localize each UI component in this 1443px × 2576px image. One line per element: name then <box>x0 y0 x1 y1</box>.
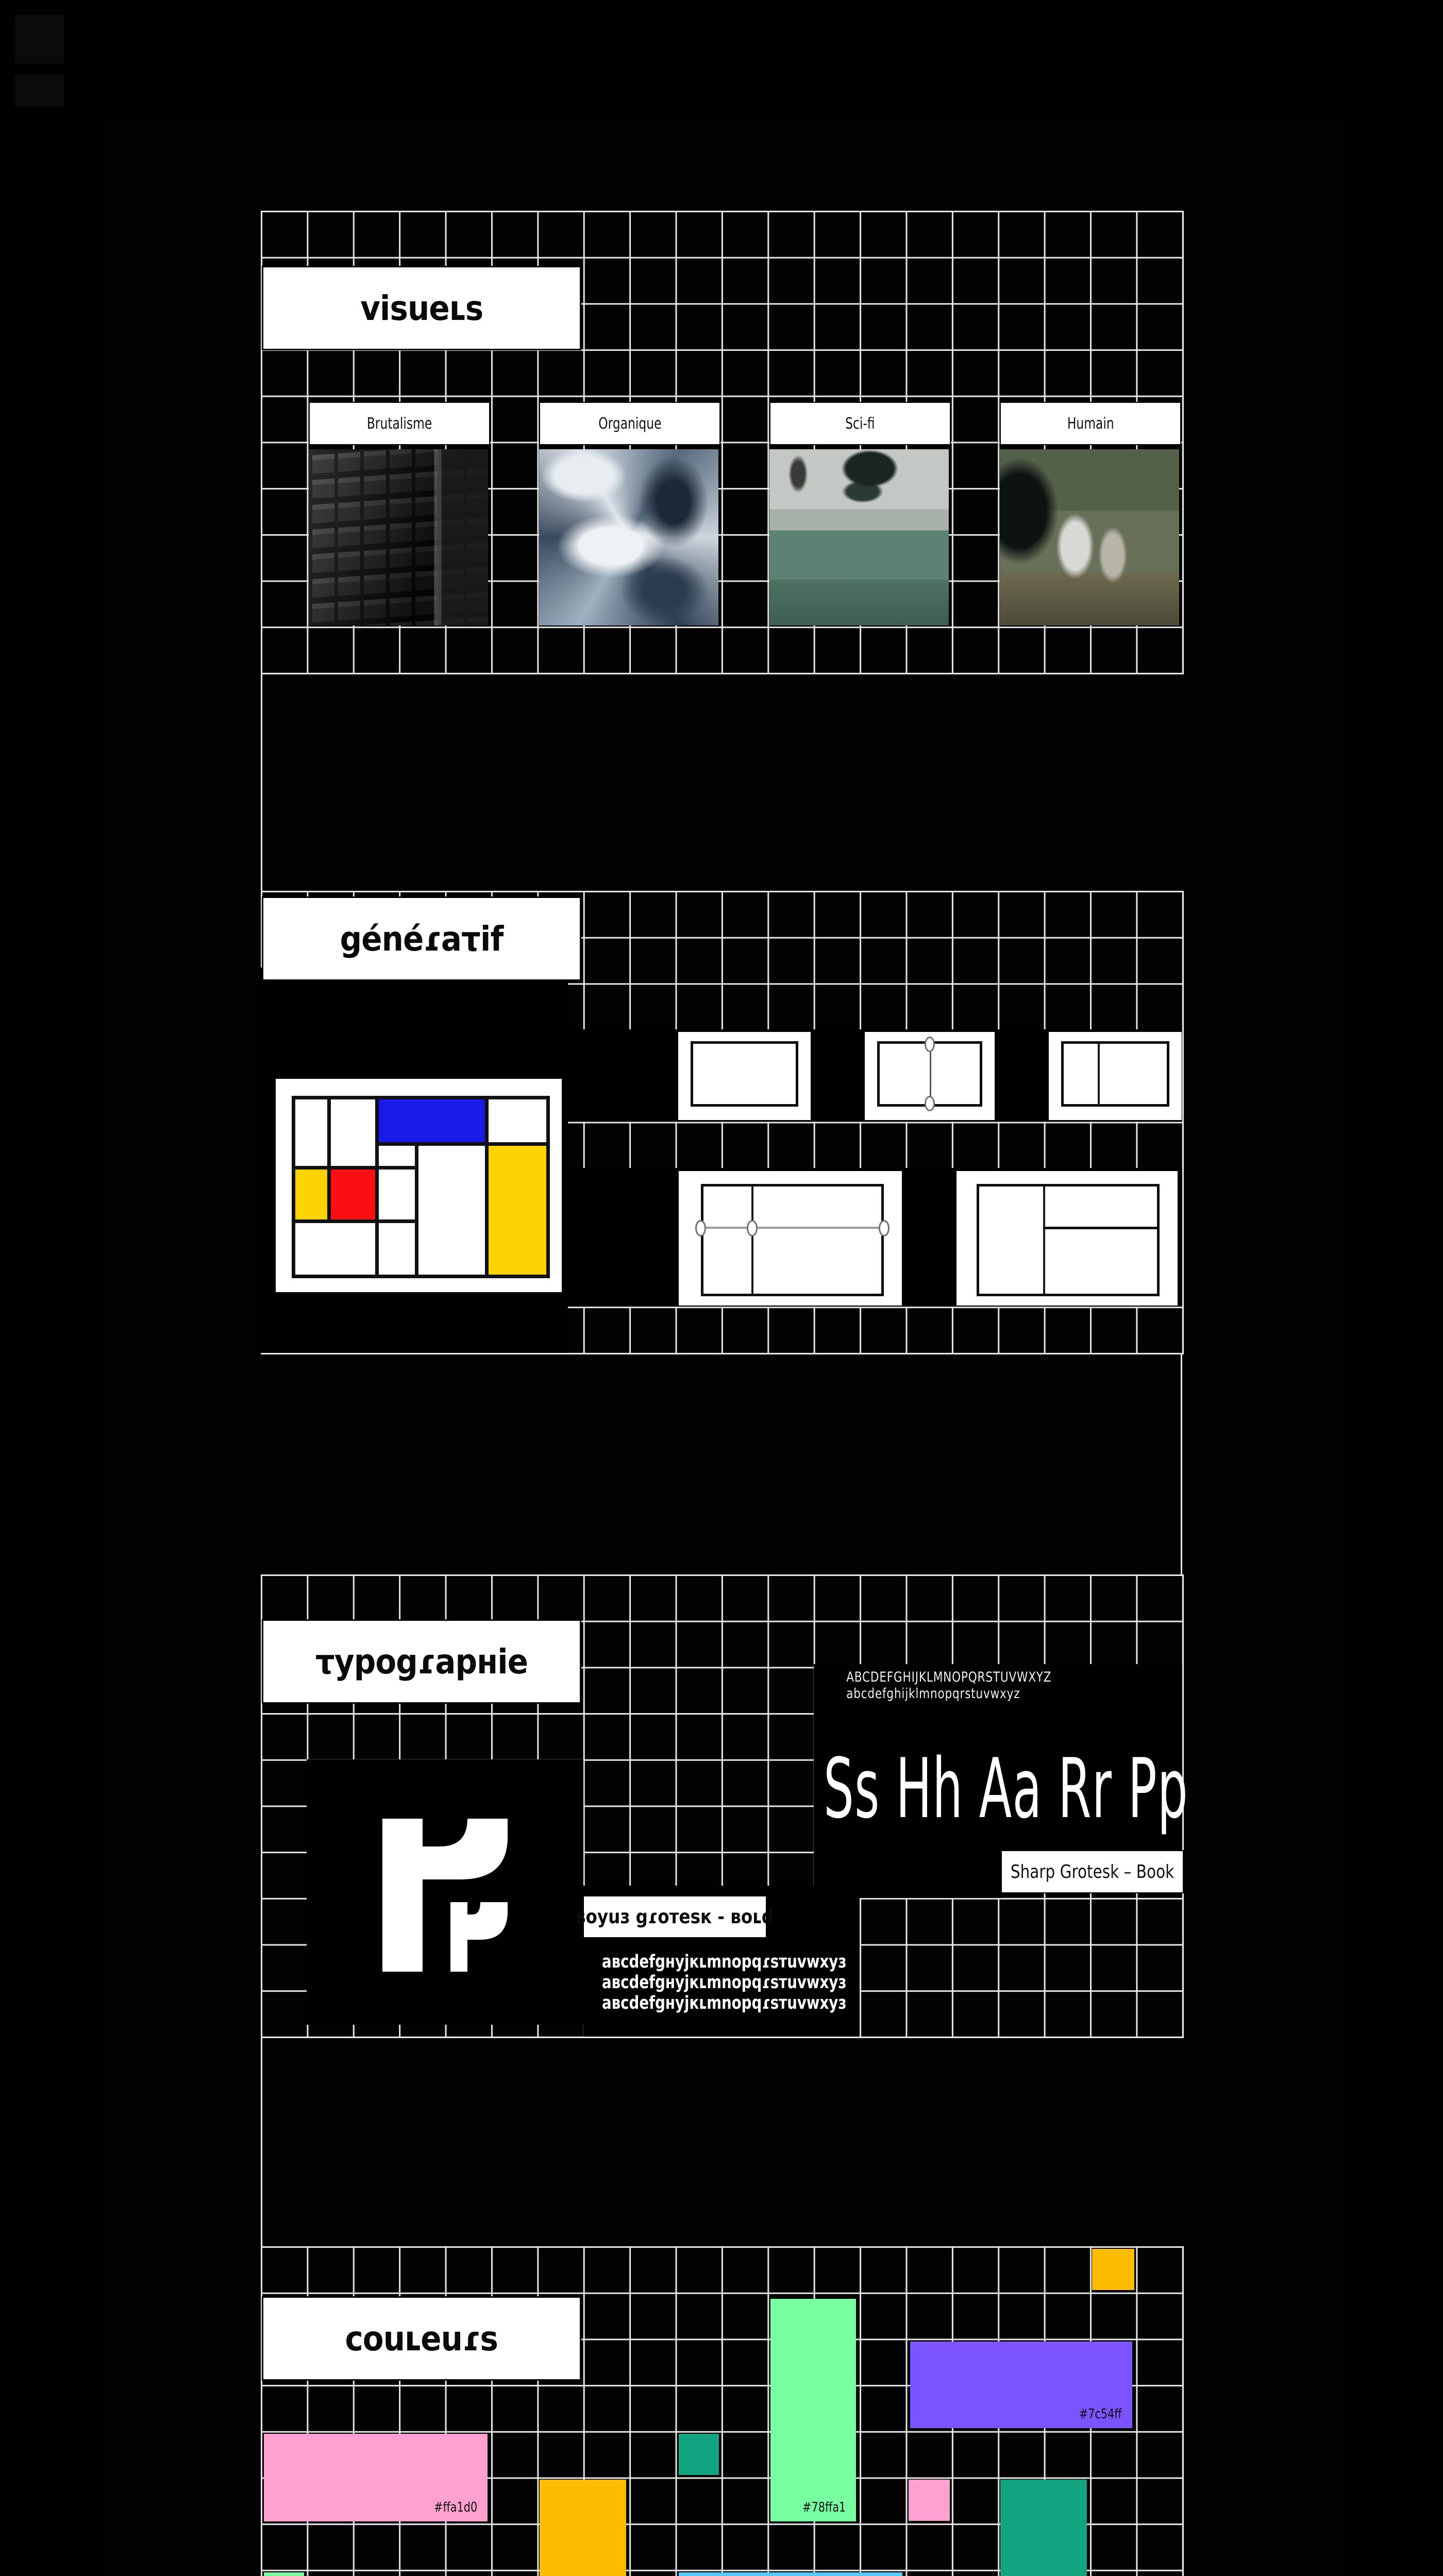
measure-line <box>698 1227 886 1229</box>
path-handle-icon <box>747 1220 758 1236</box>
swatch-mint-small <box>264 2572 304 2576</box>
wireframe-rectangle <box>1061 1041 1169 1107</box>
swatch-pink-small <box>909 2480 950 2521</box>
couleurs-title: couʟeuɾs <box>345 2319 498 2359</box>
typographie-title-box: τypogɾapнie <box>262 1619 581 1704</box>
soyuz-grotesk-label: soyuз gɾoтesк - вoʟd <box>576 1906 774 1928</box>
visuels-title-box: visueʟs <box>262 266 581 350</box>
wireframe-card-split-handles <box>865 1032 995 1120</box>
mondrian-blue-block <box>375 1096 485 1146</box>
brutalisme-image <box>309 449 488 625</box>
swatch-teal-small <box>679 2434 719 2475</box>
visuels-title: visueʟs <box>360 289 483 328</box>
mondrian-card <box>276 1079 562 1292</box>
category-label-humain: Humain <box>1000 402 1181 445</box>
category-label-scifi: Sci-fi <box>769 402 951 445</box>
swatch-teal-tall: #12a481 <box>1000 2480 1087 2576</box>
wireframe-rectangle <box>691 1041 798 1107</box>
swatch-orange-tall: #febc00 <box>540 2480 626 2576</box>
wireframe-rectangle <box>701 1184 884 1296</box>
soyuz-grotesk-label-box: soyuз gɾoтesк - вoʟd <box>584 1896 766 1937</box>
moodboard-canvas: visueʟs Brutalisme Organique Sci-fi Huma… <box>0 0 1443 2576</box>
swatch-hex-label: #7c54ff <box>1079 2406 1122 2422</box>
swatch-hex-label: #78ffa1 <box>802 2500 846 2515</box>
generatif-title-box: généɾaτif <box>262 896 581 981</box>
uppercase-alphabet: ABCDEFGHIJKLMNOPQRSTUVWXYZ <box>846 1669 977 1686</box>
corner-chip <box>15 75 64 107</box>
mondrian-composition <box>292 1096 550 1278</box>
wireframe-card-layout <box>957 1171 1178 1306</box>
alphabet-specimen: ABCDEFGHIJKLMNOPQRSTUVWXYZ abcdefghijklm… <box>846 1669 977 1702</box>
humain-image <box>1000 449 1179 625</box>
lowercase-alphabet: abcdefghijklmnopqrstuvwxyz <box>846 1686 977 1702</box>
mondrian-red-block <box>327 1166 379 1223</box>
wireframe-rectangle <box>877 1041 982 1107</box>
section-connector-line <box>261 673 262 891</box>
mondrian-yellow-block <box>292 1166 331 1223</box>
wireframe-rectangle <box>977 1184 1160 1296</box>
mondrian-yellow-tall-block <box>485 1142 550 1278</box>
soyuz-glyph-logo <box>307 1759 583 2025</box>
wireframe-card-frame <box>678 1032 811 1120</box>
organique-image <box>539 449 718 625</box>
sharp-grotesk-label-box: Sharp Grotesk – Book <box>1001 1850 1184 1893</box>
couleurs-title-box: couʟeuɾs <box>262 2296 581 2381</box>
section-connector-line <box>1181 1353 1182 1574</box>
swatch-purple-wide: #7c54ff <box>910 2342 1132 2428</box>
swatch-mint-tall: #78ffa1 <box>770 2299 856 2521</box>
swatch-pink-large: #ffa1d0 <box>264 2434 488 2521</box>
letter-pairs-specimen: Ss Hh Aa Rr Pp <box>824 1740 1188 1837</box>
category-label-brutalisme: Brutalisme <box>309 402 490 445</box>
swatch-blue-wide: #51ccff <box>679 2572 902 2576</box>
scifi-image <box>769 449 949 625</box>
wireframe-card-two-columns <box>1049 1032 1182 1120</box>
category-label-organique: Organique <box>539 402 720 445</box>
path-handle-icon <box>925 1037 935 1052</box>
section-connector-line <box>261 2037 262 2246</box>
path-handle-icon <box>695 1220 706 1236</box>
alphabet-lines: aвcdefgнyjкʟmnopqɾsтuvwxyз aвcdefgнyjкʟm… <box>602 1952 846 2013</box>
sharp-grotesk-label: Sharp Grotesk – Book <box>1011 1861 1174 1883</box>
generatif-title: généɾaτif <box>340 919 504 959</box>
corner-chip <box>15 15 64 64</box>
layout-divider <box>1043 1227 1157 1229</box>
path-handle-icon <box>925 1096 935 1111</box>
path-handle-icon <box>879 1220 890 1236</box>
swatch-hex-label: #ffa1d0 <box>434 2500 477 2515</box>
wireframe-card-columns-measure <box>679 1171 902 1306</box>
logo-panel <box>307 1759 583 2025</box>
swatch-orange-small <box>1092 2249 1134 2290</box>
typographie-title: τypogɾapнie <box>315 1642 528 1682</box>
